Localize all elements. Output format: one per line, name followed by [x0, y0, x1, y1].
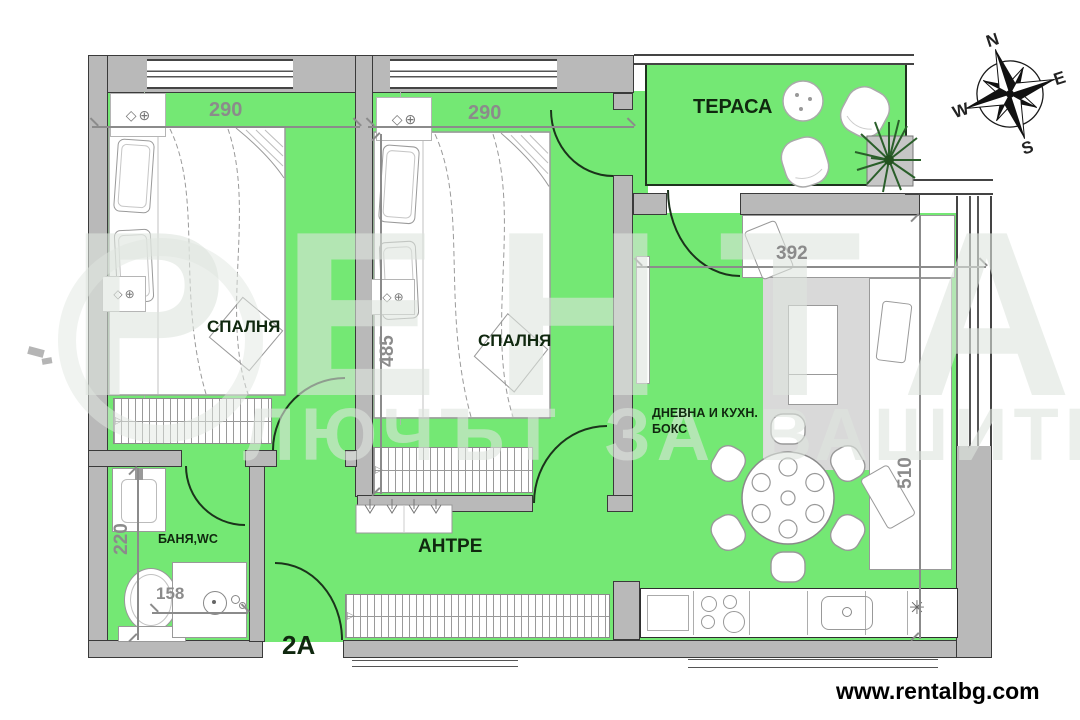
window: [390, 59, 557, 89]
dim-bedroom-2-depth: 485: [377, 329, 399, 373]
vent-symbol-icon: ◇⊕: [110, 93, 166, 137]
dimension-line: [92, 126, 360, 128]
stove-burner-icon: [701, 615, 715, 629]
vent-symbol-icon: ◇⊕: [376, 97, 432, 141]
compass-e-label: E: [1051, 68, 1068, 90]
wall-segment: [613, 581, 640, 640]
living-label-line1: ДНЕВНА И КУХН.: [652, 405, 758, 421]
floor-plan-page: ▷ ▷ ▷: [0, 0, 1080, 720]
bedroom-2-label: СПАЛНЯ: [478, 331, 551, 351]
stove-burner-icon: [701, 596, 717, 612]
fridge-icon: [647, 595, 689, 631]
wall-segment: [956, 445, 992, 658]
bathroom-label: БАНЯ,WC: [158, 532, 218, 546]
adjacent-structure-line: [352, 660, 518, 667]
dim-bathroom-depth: 220: [111, 517, 133, 561]
wardrobe-icon: ▷: [345, 594, 610, 638]
compass-s-label: S: [1019, 137, 1036, 158]
terrace-parapet: [634, 54, 914, 65]
stove-burner-icon: [723, 595, 737, 609]
dimension-line: [137, 468, 139, 640]
compass-rose-icon: N E S W: [946, 30, 1074, 158]
dimension-marker-icon: ✳: [909, 597, 939, 627]
kitchen-counter-icon: ✳: [640, 588, 958, 638]
compass-w-label: W: [950, 99, 972, 122]
coat-rack-icon: [354, 497, 454, 537]
window: [147, 59, 293, 89]
bedroom-1-label: СПАЛНЯ: [207, 317, 280, 337]
wall-segment: [343, 640, 992, 658]
living-label-line2: БОКС: [652, 421, 758, 437]
wall-segment: [613, 93, 633, 110]
adjacent-structure-line: [688, 659, 938, 668]
terrace-label: ТЕРАСА: [693, 96, 772, 119]
stove-burner-icon: [723, 611, 745, 633]
site-url: www.rentalbg.com: [836, 678, 1040, 705]
compass-n-label: N: [984, 30, 1002, 51]
dimension-line: [152, 612, 248, 614]
artifact-speck: [27, 346, 45, 358]
hallway-label: АНТРЕ: [418, 536, 482, 558]
dim-shower-width: 158: [156, 584, 184, 604]
dim-bedroom-1-width: 290: [209, 99, 242, 122]
living-label: ДНЕВНА И КУХН. БОКС: [652, 405, 758, 437]
dim-bedroom-2-width: 290: [468, 102, 501, 125]
wall-segment: [88, 450, 182, 467]
wall-segment: [249, 466, 265, 642]
unit-number: 2А: [282, 630, 315, 661]
dimension-line: [368, 126, 634, 128]
artifact-speck: [42, 357, 53, 365]
wall-segment: [88, 640, 263, 658]
wall-segment: [607, 495, 633, 512]
dim-living-depth: 510: [895, 451, 917, 495]
dim-living-width: 392: [776, 243, 808, 265]
